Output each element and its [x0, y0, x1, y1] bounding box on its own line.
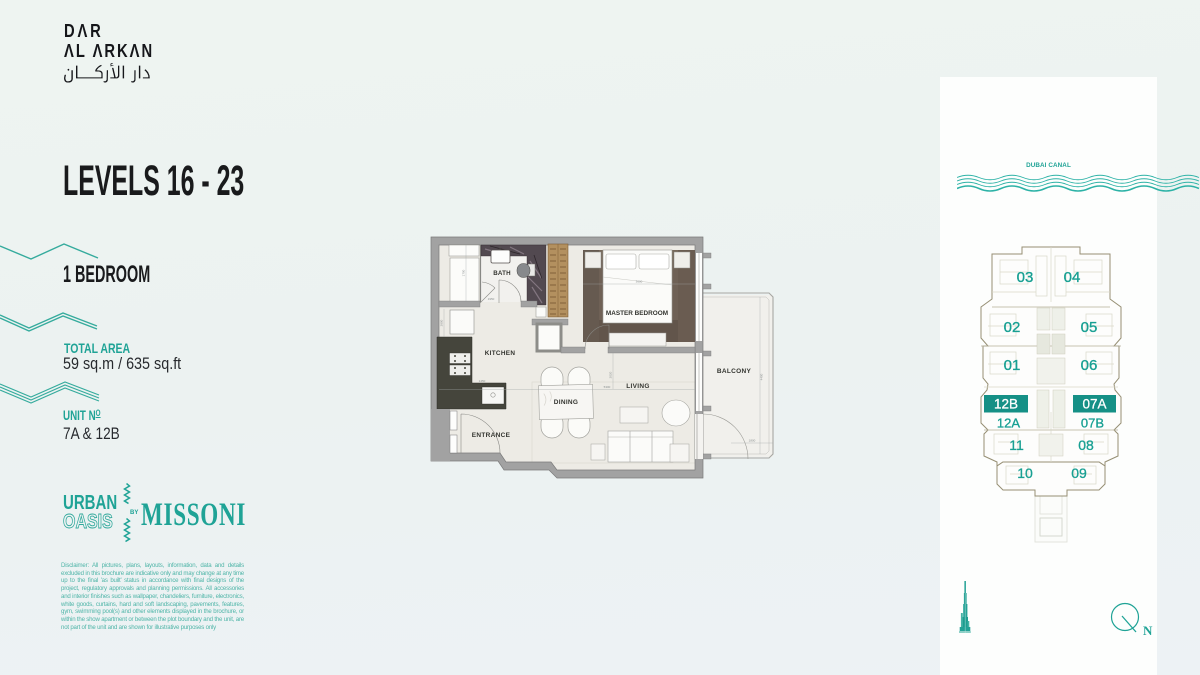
svg-text:08: 08 — [1078, 437, 1094, 453]
svg-text:1800: 1800 — [749, 439, 756, 443]
svg-text:2800: 2800 — [440, 319, 444, 326]
svg-text:03: 03 — [1017, 269, 1034, 286]
svg-text:BY: BY — [130, 510, 138, 516]
svg-text:09: 09 — [1071, 465, 1087, 481]
svg-text:3600: 3600 — [636, 280, 643, 284]
svg-text:05: 05 — [1081, 319, 1098, 336]
svg-text:LIVING: LIVING — [626, 383, 649, 390]
svg-text:ENTRANCE: ENTRANCE — [472, 432, 511, 439]
svg-text:BATH: BATH — [493, 270, 511, 277]
svg-text:MASTER BEDROOM: MASTER BEDROOM — [606, 310, 668, 317]
svg-text:N: N — [1143, 623, 1153, 638]
svg-text:1450: 1450 — [479, 379, 486, 383]
svg-text:06: 06 — [1081, 357, 1098, 374]
svg-text:10: 10 — [1017, 465, 1033, 481]
svg-text:04: 04 — [1064, 269, 1081, 286]
svg-text:12B: 12B — [994, 397, 1018, 412]
svg-text:5300: 5300 — [604, 385, 611, 389]
svg-text:02: 02 — [1004, 319, 1021, 336]
svg-text:12A: 12A — [997, 416, 1020, 431]
svg-text:KITCHEN: KITCHEN — [485, 350, 516, 357]
svg-text:1700: 1700 — [462, 269, 466, 276]
svg-text:DINING: DINING — [554, 399, 579, 406]
svg-text:BALCONY: BALCONY — [717, 368, 752, 375]
svg-text:07B: 07B — [1081, 416, 1104, 431]
svg-text:11: 11 — [1009, 437, 1024, 453]
svg-text:01: 01 — [1004, 357, 1021, 374]
svg-text:07A: 07A — [1082, 397, 1106, 412]
svg-text:1950: 1950 — [488, 297, 495, 301]
svg-text:2020: 2020 — [609, 371, 613, 378]
svg-text:4400: 4400 — [760, 373, 764, 380]
